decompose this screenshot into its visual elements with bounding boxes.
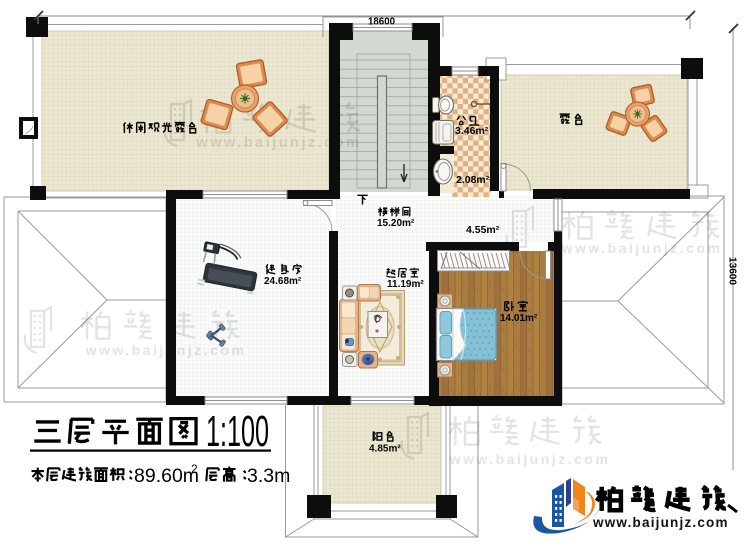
svg-text:4.55m²: 4.55m²: [466, 224, 500, 236]
svg-text:4.85m²: 4.85m²: [369, 444, 401, 455]
svg-text:www.baijunjz.com: www.baijunjz.com: [449, 451, 611, 467]
svg-text:3.3m: 3.3m: [247, 465, 290, 487]
svg-text:www.baijunjz.com: www.baijunjz.com: [561, 240, 723, 256]
svg-text:2.08m²: 2.08m²: [456, 174, 490, 186]
svg-text:15.20m²: 15.20m²: [377, 218, 415, 229]
svg-text:1:100: 1:100: [206, 407, 269, 456]
svg-text:89.60m: 89.60m: [134, 465, 199, 487]
svg-text:3.46m²: 3.46m²: [455, 125, 489, 137]
svg-text:24.68m²: 24.68m²: [264, 276, 302, 287]
svg-text:www.baijunjz.com: www.baijunjz.com: [592, 515, 729, 530]
svg-text:18600: 18600: [368, 16, 395, 28]
svg-text:11.19m²: 11.19m²: [387, 279, 424, 290]
svg-text:13600: 13600: [727, 257, 738, 285]
svg-text:2: 2: [191, 462, 198, 476]
svg-text:14.01m²: 14.01m²: [500, 313, 538, 324]
